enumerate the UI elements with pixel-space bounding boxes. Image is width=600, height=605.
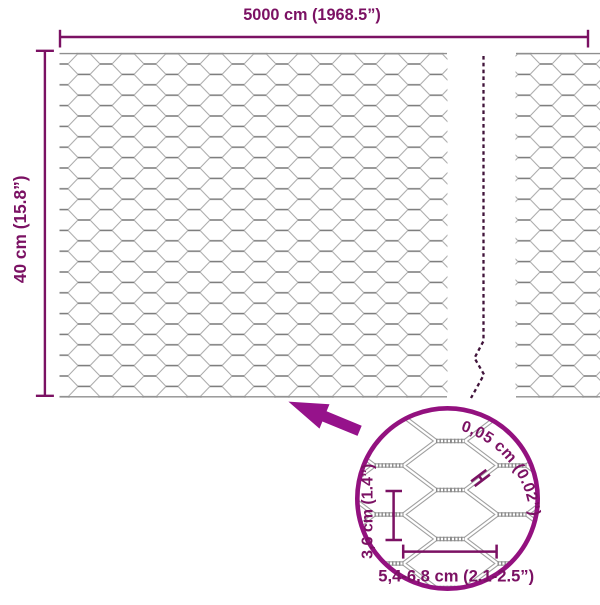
- svg-text:5000 cm (1968.5”): 5000 cm (1968.5”): [243, 6, 381, 24]
- svg-text:40 cm (15.8”): 40 cm (15.8”): [10, 176, 30, 284]
- svg-text:3,6 cm (1.4”): 3,6 cm (1.4”): [360, 464, 377, 559]
- svg-text:5,4-6,8 cm (2.1-2.5”): 5,4-6,8 cm (2.1-2.5”): [378, 567, 534, 586]
